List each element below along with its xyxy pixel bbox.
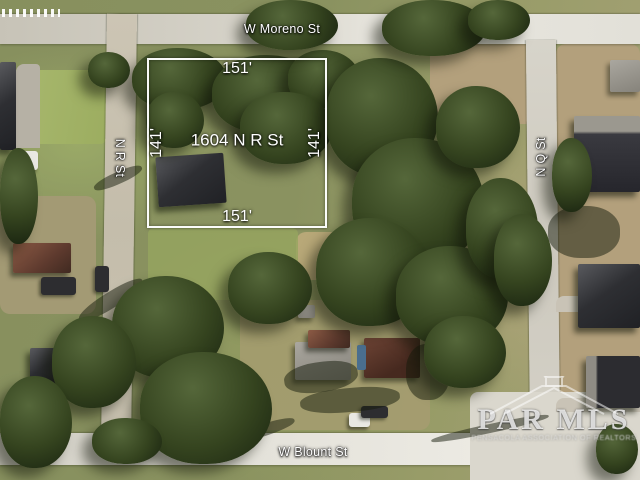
tree [0, 376, 72, 468]
street-label-w-blount-st: W Blount St [278, 445, 347, 459]
tree [88, 52, 130, 88]
tree [436, 86, 520, 168]
parcel-dimension-top: 151' [222, 60, 252, 78]
building [610, 60, 640, 92]
par-mls-watermark: PAR MLS PENSACOLA ASSOCIATION OF REALTOR… [468, 376, 640, 442]
vehicle [95, 266, 109, 292]
aerial-map: 151' 151' 141' 141' 1604 N R St W Moreno… [0, 0, 640, 480]
patche [16, 64, 40, 148]
parcel-dimension-right: 141' [306, 128, 324, 158]
building [308, 330, 350, 348]
vehicle [41, 277, 76, 295]
parcel-outline: 151' 151' 141' 141' 1604 N R St [147, 58, 327, 228]
shadow [548, 206, 620, 258]
building [13, 243, 71, 273]
parcel-dimension-bottom: 151' [222, 208, 252, 226]
street-label-w-moreno-st: W Moreno St [244, 22, 320, 36]
crosswalk-markings [2, 9, 60, 17]
parcel-address-label: 1604 N R St [191, 131, 284, 151]
tree [468, 0, 530, 40]
street-label-n-r-st: N R St [113, 139, 127, 178]
building [0, 62, 16, 150]
house-roof-icon [484, 376, 624, 416]
tree [0, 148, 38, 244]
building [578, 264, 640, 328]
tree [552, 138, 592, 212]
parcel-dimension-left: 141' [148, 128, 166, 158]
street-label-n-q-st: N Q St [534, 137, 548, 176]
watermark-subtitle: PENSACOLA ASSOCIATION OF REALTORS [471, 433, 636, 442]
vehicle [357, 345, 366, 370]
tree [494, 214, 552, 306]
tree [92, 418, 162, 464]
tree [228, 252, 312, 324]
